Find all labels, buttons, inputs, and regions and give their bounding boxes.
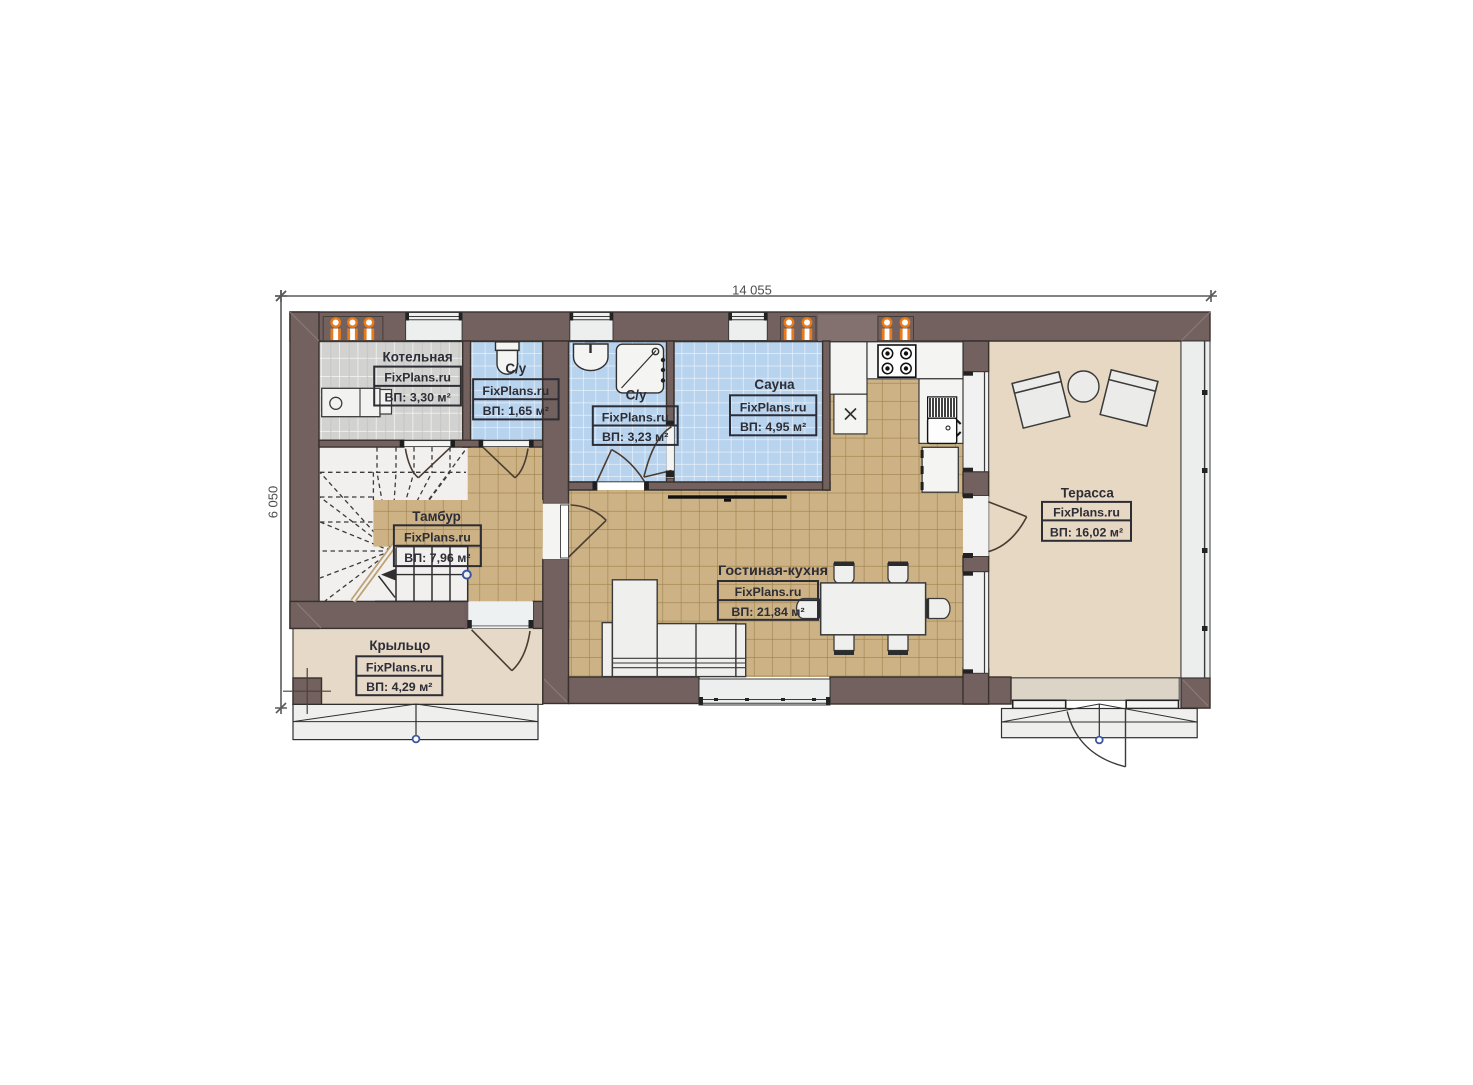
svg-text:FixPlans.ru: FixPlans.ru [740,400,807,414]
svg-text:Сауна: Сауна [754,377,795,392]
svg-text:ВП: 4,95 м²: ВП: 4,95 м² [740,420,806,434]
svg-text:Гостиная-кухня: Гостиная-кухня [718,563,828,578]
svg-text:FixPlans.ru: FixPlans.ru [1053,506,1120,520]
svg-text:FixPlans.ru: FixPlans.ru [735,585,802,599]
svg-text:FixPlans.ru: FixPlans.ru [366,661,433,675]
svg-text:FixPlans.ru: FixPlans.ru [482,384,549,398]
svg-text:FixPlans.ru: FixPlans.ru [384,371,451,385]
svg-text:FixPlans.ru: FixPlans.ru [602,411,669,425]
svg-text:Котельная: Котельная [383,350,453,365]
svg-text:6 050: 6 050 [266,486,281,519]
svg-text:14 055: 14 055 [732,283,772,298]
svg-text:ВП: 7,96 м²: ВП: 7,96 м² [404,551,470,565]
svg-text:ВП: 21,84 м²: ВП: 21,84 м² [731,605,804,619]
svg-text:ВП: 16,02 м²: ВП: 16,02 м² [1050,526,1123,540]
svg-text:Тамбур: Тамбур [412,509,461,524]
svg-text:FixPlans.ru: FixPlans.ru [404,531,471,545]
svg-text:Терасса: Терасса [1061,486,1115,501]
svg-text:ВП: 3,23 м²: ВП: 3,23 м² [602,430,668,444]
svg-text:ВП: 1,65 м²: ВП: 1,65 м² [483,404,549,418]
svg-text:Крыльцо: Крыльцо [369,638,430,653]
svg-text:ВП: 3,30 м²: ВП: 3,30 м² [384,390,450,404]
svg-text:ВП: 4,29 м²: ВП: 4,29 м² [366,680,432,694]
svg-text:С/у: С/у [505,361,526,376]
svg-text:С/у: С/у [626,388,647,403]
